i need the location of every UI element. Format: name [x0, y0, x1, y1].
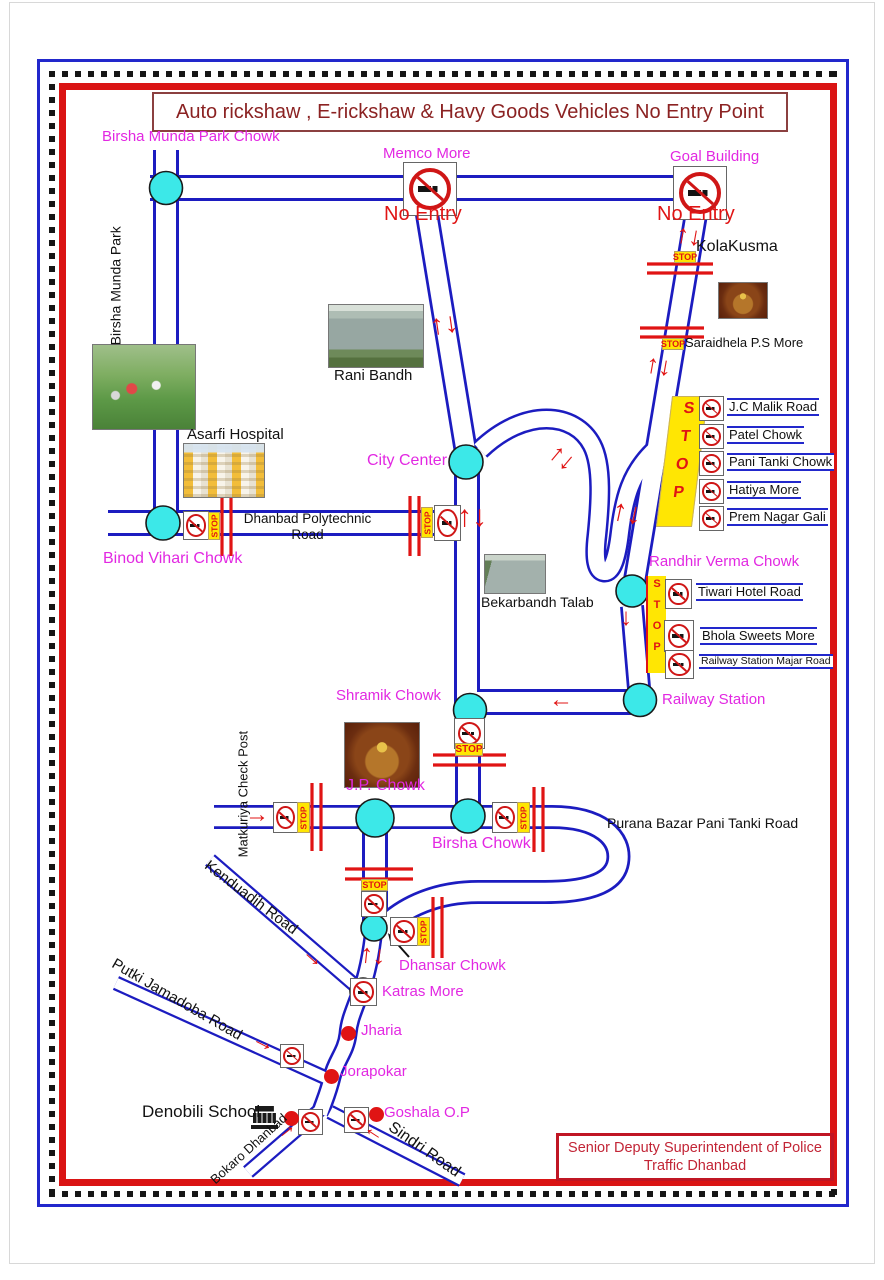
stop-badge: STOP: [421, 507, 433, 538]
label-hatiya-more: Hatiya More: [727, 481, 801, 499]
stop-badge: STOP: [674, 251, 696, 263]
label-binod-vihari-chowk: Binod Vihari Chowk: [103, 551, 242, 568]
no-entry-icon: [702, 454, 721, 473]
no-entry-sign-prem-nagar: [699, 506, 724, 531]
no-entry-icon: [276, 806, 295, 830]
two-way-arrow: ↑↓: [359, 940, 388, 969]
label-no-entry-goal: No Entry: [657, 204, 735, 225]
no-entry-icon: [301, 1112, 320, 1132]
jorapokar-dot: [324, 1069, 339, 1084]
stop-strip-text: STOP: [665, 400, 698, 526]
bekarbandh-talab-photo: [484, 554, 546, 594]
no-entry-icon: [702, 482, 721, 501]
no-entry-sign-jc-malik: [699, 396, 724, 421]
label-birsha-chowk: Birsha Chowk: [432, 836, 531, 853]
label-birsha-munda-park: Birsha Munda Park: [109, 233, 124, 345]
label-jp-chowk: J.P. Chowk: [346, 778, 425, 795]
label-birsha-munda-park-chowk: Birsha Munda Park Chowk: [102, 129, 280, 145]
no-entry-sign-hatiya: [699, 479, 724, 504]
no-entry-sign-pani-tanki: [699, 451, 724, 476]
asarfi-hospital-photo: [183, 443, 265, 498]
stop-badge-text: STOP: [299, 806, 309, 829]
stop-badge: STOP: [297, 802, 310, 833]
no-entry-icon: [702, 509, 721, 528]
stop-strip-text: STOP: [651, 578, 663, 673]
no-entry-icon: [393, 920, 414, 942]
no-entry-sign-bhola: [664, 620, 694, 652]
stop-badge-text: STOP: [519, 806, 529, 829]
label-kolakusma: KolaKusma: [696, 239, 778, 256]
no-entry-icon: [668, 624, 691, 649]
stop-badge-text: STOP: [419, 920, 429, 943]
no-entry-icon: [364, 894, 384, 914]
label-denobili-school: Denobili School: [142, 1103, 260, 1121]
no-entry-sign-patel: [699, 424, 724, 449]
label-memco-more: Memco More: [383, 146, 471, 162]
no-entry-sign-bokaro: [298, 1109, 323, 1135]
label-bekarbandh-talab: Bekarbandh Talab: [481, 595, 594, 610]
no-entry-sign-matkuriya: [273, 802, 298, 833]
stop-badge: STOP: [662, 338, 684, 350]
no-entry-icon: [283, 1047, 301, 1065]
no-entry-sign-dhansar-right: [390, 917, 418, 946]
no-entry-icon: [495, 806, 515, 830]
two-way-arrow: ↑↓: [457, 502, 487, 532]
label-dhansar-chowk: Dhansar Chowk: [399, 958, 506, 974]
label-jc-malik-road: J.C Malik Road: [727, 398, 819, 416]
footer-signature-box: Senior Deputy Superintendent of Police T…: [556, 1133, 834, 1181]
stop-badge-text: STOP: [209, 515, 219, 538]
label-patel-chowk: Patel Chowk: [727, 426, 804, 444]
no-entry-sign-tiwari: [665, 579, 692, 609]
birsha-munda-park-photo: [92, 344, 196, 430]
kolakusma-durga-photo: [718, 282, 768, 319]
label-jharia: Jharia: [361, 1023, 402, 1039]
label-goal-building: Goal Building: [670, 149, 759, 165]
no-entry-sign-dhansar-top: [361, 891, 387, 917]
label-matkuriya-check-post: Matkuriya Check Post: [237, 742, 251, 857]
stop-badge: STOP: [517, 802, 530, 833]
label-purana-bazar-pani-tanki-road: Purana Bazar Pani Tanki Road: [607, 816, 798, 831]
label-railway-station-majar-road: Railway Station Majar Road: [699, 654, 833, 669]
no-entry-sign-majar-road: [665, 650, 694, 679]
label-goshala-op: Goshala O.P: [384, 1105, 470, 1121]
label-asarfi-hospital: Asarfi Hospital: [187, 427, 284, 443]
no-entry-sign-birsha-chowk: [492, 802, 518, 833]
label-randhir-verma-chowk: Randhir Verma Chowk: [649, 554, 799, 570]
two-way-arrow: ↑↓: [644, 350, 674, 380]
label-bhola-sweets-more: Bhola Sweets More: [700, 627, 817, 645]
label-prem-nagar-gali: Prem Nagar Gali: [727, 508, 828, 526]
two-way-arrow: ↑↓: [609, 495, 645, 531]
label-saraidhela: Saraidhela P.S More: [685, 336, 803, 350]
label-katras-more: Katras More: [382, 984, 464, 1000]
no-entry-sign-binod-vihari: [183, 511, 209, 540]
no-entry-icon: [437, 509, 458, 537]
stop-badge: STOP: [208, 512, 220, 540]
label-jorapokar: Jorapokar: [340, 1064, 407, 1080]
label-dhanbad-polytechnic-road: Dhanbad Polytechnic Road: [240, 511, 375, 543]
no-entry-icon: [458, 722, 482, 746]
rani-bandh-photo: [328, 304, 424, 368]
label-railway-station: Railway Station: [662, 692, 765, 708]
no-entry-icon: [668, 583, 689, 606]
no-entry-icon: [353, 981, 374, 1002]
no-entry-icon: [186, 514, 206, 536]
no-entry-sign-katras: [350, 978, 377, 1006]
label-pani-tanki-chowk: Pani Tanki Chowk: [727, 453, 834, 471]
two-way-arrow: ↑↓: [428, 308, 460, 340]
down-arrow: ↓: [620, 606, 632, 630]
label-city-center: City Center: [367, 453, 447, 470]
stop-strip-randhir: STOP: [646, 576, 666, 673]
label-shramik-chowk: Shramik Chowk: [336, 688, 441, 704]
no-entry-icon: [702, 427, 721, 446]
label-tiwari-hotel-road: Tiwari Hotel Road: [696, 583, 803, 601]
footer-line1: Senior Deputy Superintendent of Police: [568, 1139, 822, 1157]
no-entry-icon: [702, 399, 721, 418]
no-entry-icon: [668, 653, 690, 675]
stop-badge: STOP: [417, 917, 430, 946]
label-rani-bandh: Rani Bandh: [334, 368, 412, 384]
jharia-dot: [341, 1026, 356, 1041]
stop-badge: STOP: [455, 743, 483, 756]
stop-badge-text: STOP: [422, 511, 432, 534]
no-entry-sign-putki: [280, 1044, 304, 1068]
stop-badge: STOP: [361, 879, 388, 891]
traffic-no-entry-map-poster: { "page": { "title": "Auto rickshaw , E-…: [0, 0, 884, 1280]
footer-line2: Traffic Dhanbad: [644, 1157, 746, 1175]
label-no-entry-memco: No Entry: [384, 204, 462, 225]
left-arrow: ←: [549, 688, 573, 712]
